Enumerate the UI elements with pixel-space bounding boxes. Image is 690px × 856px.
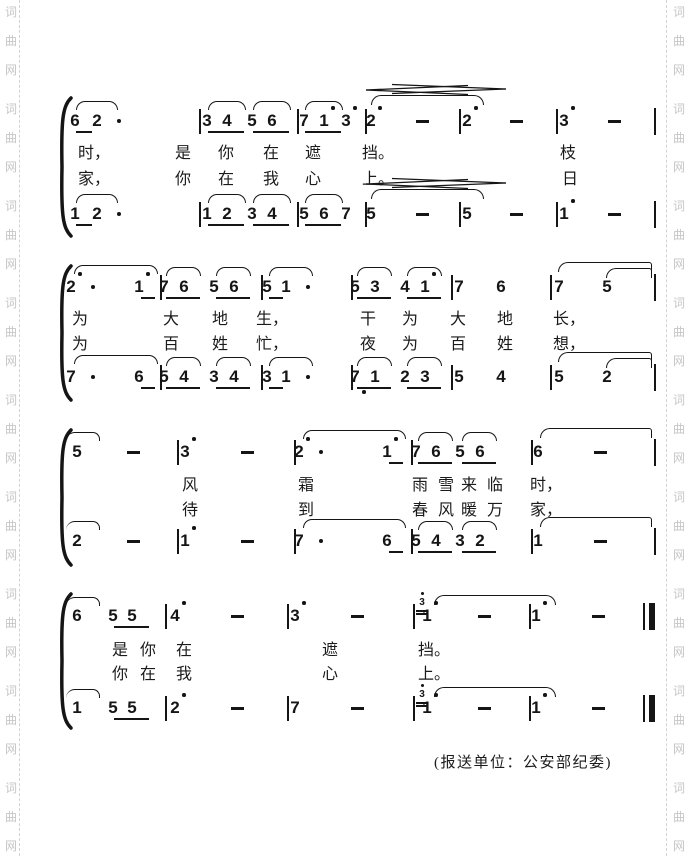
watermark-char: 词 [673, 782, 685, 794]
eighth-underline [76, 224, 92, 226]
jianpu-note: 5 [155, 368, 173, 386]
lyric-syllable: 家， [78, 171, 110, 188]
watermark-char: 网 [5, 161, 17, 173]
watermark-char: 网 [5, 743, 17, 755]
eighth-underline [462, 551, 496, 553]
jianpu-note: 3 [205, 368, 223, 386]
watermark-char: 曲 [673, 714, 685, 726]
sustain-dash [510, 213, 523, 216]
tie [434, 595, 556, 605]
tie-continuation [606, 358, 652, 368]
jianpu-note: 2 [88, 112, 106, 130]
eighth-underline [253, 224, 289, 226]
eighth-underline [166, 297, 200, 299]
eighth-underline [389, 551, 403, 553]
slur [418, 432, 453, 441]
eighth-underline [166, 387, 200, 389]
slur [208, 101, 246, 110]
watermark-char: 词 [5, 297, 17, 309]
jianpu-note: 7 [337, 205, 355, 223]
slur [76, 101, 118, 110]
augmentation-dot [306, 375, 310, 379]
slur [418, 521, 453, 530]
eighth-underline [305, 224, 341, 226]
jianpu-note: 3 [555, 112, 573, 130]
lyric-syllable: 大 [450, 311, 466, 328]
jianpu-note: 3 [366, 278, 384, 296]
jianpu-note: 6 [378, 532, 396, 550]
slur [253, 194, 291, 203]
lyric-syllable: 在 [140, 666, 156, 683]
tie [371, 95, 484, 105]
augmentation-dot [91, 285, 95, 289]
jianpu-note: 1 [418, 699, 436, 717]
jianpu-note: 6 [68, 607, 86, 625]
jianpu-note: 5 [451, 443, 469, 461]
eighth-underline [141, 297, 155, 299]
jianpu-note: 6 [130, 368, 148, 386]
lyric-syllable: 风 [438, 502, 454, 519]
jianpu-note: 5 [295, 205, 313, 223]
jianpu-note: 6 [492, 278, 510, 296]
watermark-char: 词 [673, 200, 685, 212]
decrescendo-hairpin [392, 179, 506, 184]
tie [434, 687, 556, 697]
sustain-dash [416, 120, 429, 123]
watermark-char: 曲 [5, 811, 17, 823]
tie [371, 189, 484, 199]
watermark-char: 曲 [5, 423, 17, 435]
system-end-barline [654, 439, 656, 466]
sustain-dash [608, 213, 621, 216]
augmentation-dot [319, 539, 323, 543]
lyric-syllable: 待 [182, 502, 198, 519]
eighth-underline [208, 131, 244, 133]
lyric-syllable: 百 [163, 336, 179, 353]
jianpu-note: 7 [290, 532, 308, 550]
jianpu-note: 4 [263, 205, 281, 223]
watermark-char: 词 [673, 6, 685, 18]
decrescendo-hairpin [392, 89, 506, 94]
eighth-underline [141, 387, 155, 389]
eighth-underline [76, 131, 92, 133]
lyric-syllable: 为 [72, 311, 88, 328]
jianpu-note: 1 [366, 368, 384, 386]
octave-dot-high [192, 526, 196, 530]
jianpu-note: 2 [62, 278, 80, 296]
watermark-char: 曲 [673, 35, 685, 47]
jianpu-note: 4 [175, 368, 193, 386]
lyric-syllable: 是 [112, 642, 128, 659]
watermark-divider-right [666, 0, 667, 856]
jianpu-note: 5 [407, 532, 425, 550]
jianpu-note: 6 [427, 443, 445, 461]
watermark-char: 网 [673, 355, 685, 367]
lyric-syllable: 雪 [438, 477, 454, 494]
lyric-syllable: 干 [360, 311, 376, 328]
lyric-syllable: 忙， [256, 336, 288, 353]
lyric-syllable: 日 [562, 171, 578, 188]
jianpu-note: 2 [362, 112, 380, 130]
octave-dot-high [378, 106, 382, 110]
watermark-char: 词 [5, 394, 17, 406]
lyric-syllable: 时， [530, 477, 562, 494]
barline [413, 696, 415, 721]
sustain-dash [241, 451, 254, 454]
lyric-syllable: 在 [218, 171, 234, 188]
jianpu-note: 2 [88, 205, 106, 223]
jianpu-note: 1 [527, 607, 545, 625]
jianpu-note: 7 [62, 368, 80, 386]
jianpu-note: 4 [218, 112, 236, 130]
tie-continuation [540, 517, 652, 527]
jianpu-note: 5 [104, 607, 122, 625]
sustain-dash [231, 707, 244, 710]
eighth-underline [269, 297, 283, 299]
watermark-char: 词 [673, 491, 685, 503]
slur [303, 430, 406, 439]
lyric-syllable: 春 [412, 502, 428, 519]
sustain-dash [241, 540, 254, 543]
sustain-dash [478, 707, 491, 710]
lyric-syllable: 为 [402, 311, 418, 328]
jianpu-note: 2 [218, 205, 236, 223]
jianpu-note: 1 [555, 205, 573, 223]
slur [253, 101, 291, 110]
barline [413, 604, 415, 629]
jianpu-note: 6 [471, 443, 489, 461]
lyric-syllable: 大 [163, 311, 179, 328]
watermark-char: 曲 [5, 132, 17, 144]
jianpu-note: 4 [166, 607, 184, 625]
watermark-char: 网 [673, 161, 685, 173]
jianpu-note: 3 [337, 112, 355, 130]
watermark-char: 词 [5, 103, 17, 115]
lyric-syllable: 为 [402, 336, 418, 353]
jianpu-note: 7 [286, 699, 304, 717]
jianpu-note: 5 [346, 278, 364, 296]
watermark-char: 曲 [5, 326, 17, 338]
submission-note: (报送单位：公安部纪委) [434, 754, 612, 773]
watermark-char: 词 [5, 782, 17, 794]
lyric-syllable: 挡。 [418, 642, 450, 659]
jianpu-note: 7 [450, 278, 468, 296]
jianpu-note: 1 [277, 368, 295, 386]
slur [76, 194, 118, 203]
watermark-char: 网 [673, 64, 685, 76]
eighth-underline [462, 462, 496, 464]
jianpu-note: 6 [66, 112, 84, 130]
sustain-dash [592, 707, 605, 710]
jianpu-note: 1 [68, 699, 86, 717]
lyric-syllable: 生， [256, 311, 288, 328]
jianpu-note: 7 [346, 368, 364, 386]
jianpu-note: 1 [198, 205, 216, 223]
watermark-char: 曲 [673, 423, 685, 435]
final-barline-thick [649, 603, 655, 630]
lyric-syllable: 暖 [461, 502, 477, 519]
watermark-char: 曲 [673, 132, 685, 144]
octave-dot-high [182, 601, 186, 605]
grace-octave-dot [421, 592, 424, 595]
eighth-underline [253, 131, 289, 133]
jianpu-note: 7 [407, 443, 425, 461]
jianpu-note: 2 [166, 699, 184, 717]
jianpu-note: 5 [458, 205, 476, 223]
octave-dot-high [302, 601, 306, 605]
jianpu-note: 3 [451, 532, 469, 550]
eighth-underline [114, 718, 149, 720]
eighth-underline [407, 297, 441, 299]
lyric-syllable: 霜 [298, 477, 314, 494]
augmentation-dot [117, 119, 121, 123]
jianpu-note: 3 [286, 607, 304, 625]
watermark-char: 曲 [5, 229, 17, 241]
jianpu-note: 1 [527, 699, 545, 717]
watermark-char: 词 [5, 685, 17, 697]
grace-octave-dot [421, 684, 424, 687]
lyric-syllable: 想， [553, 336, 585, 353]
lyric-syllable: 雨 [412, 477, 428, 494]
system-end-barline [654, 201, 656, 228]
tie-continuation [540, 428, 652, 438]
watermark-char: 词 [673, 685, 685, 697]
jianpu-note: 2 [290, 443, 308, 461]
system-end-barline [654, 108, 656, 135]
slur [305, 101, 343, 110]
watermark-char: 曲 [673, 617, 685, 629]
lyric-syllable: 临 [487, 477, 503, 494]
sustain-dash [592, 615, 605, 618]
eighth-underline [357, 387, 391, 389]
lyric-syllable: 地 [497, 311, 513, 328]
watermark-char: 曲 [673, 811, 685, 823]
watermark-char: 网 [673, 646, 685, 658]
watermark-char: 网 [5, 64, 17, 76]
slur [166, 267, 201, 276]
jianpu-note: 5 [104, 699, 122, 717]
sustain-dash [608, 120, 621, 123]
jianpu-note: 5 [68, 443, 86, 461]
lyric-syllable: 上。 [362, 171, 394, 188]
lyric-syllable: 你 [140, 642, 156, 659]
jianpu-note: 2 [68, 532, 86, 550]
sustain-dash [594, 540, 607, 543]
watermark-char: 网 [673, 452, 685, 464]
lyric-syllable: 我 [263, 171, 279, 188]
watermark-char: 词 [673, 588, 685, 600]
lyric-syllable: 在 [263, 145, 279, 162]
lyric-syllable: 是 [175, 145, 191, 162]
system-end-barline [654, 274, 656, 301]
slur [407, 267, 442, 276]
slur [407, 357, 442, 366]
crescendo-hairpin [366, 90, 468, 95]
jianpu-note: 6 [529, 443, 547, 461]
watermark-char: 曲 [5, 520, 17, 532]
lyric-syllable: 上。 [418, 666, 450, 683]
tie-continuation [606, 268, 652, 278]
octave-dot-high [192, 437, 196, 441]
jianpu-note: 5 [362, 205, 380, 223]
eighth-underline [208, 224, 244, 226]
jianpu-note: 4 [492, 368, 510, 386]
augmentation-dot [91, 375, 95, 379]
slur [462, 521, 497, 530]
slur [208, 194, 246, 203]
jianpu-note: 5 [123, 607, 141, 625]
sustain-dash [594, 451, 607, 454]
octave-dot-high [474, 106, 478, 110]
eighth-underline [216, 387, 250, 389]
watermark-char: 词 [5, 200, 17, 212]
eighth-underline [305, 131, 341, 133]
jianpu-note: 1 [66, 205, 84, 223]
eighth-underline [269, 387, 283, 389]
slur [357, 267, 392, 276]
octave-dot-high [571, 199, 575, 203]
jianpu-note: 3 [176, 443, 194, 461]
jianpu-note: 3 [243, 205, 261, 223]
watermark-char: 曲 [673, 520, 685, 532]
jianpu-note: 2 [598, 368, 616, 386]
sustain-dash [231, 615, 244, 618]
lyric-syllable: 心 [305, 171, 321, 188]
watermark-char: 曲 [673, 326, 685, 338]
jianpu-note: 7 [550, 278, 568, 296]
jianpu-note: 1 [130, 278, 148, 296]
jianpu-note: 6 [225, 278, 243, 296]
watermark-char: 词 [673, 394, 685, 406]
octave-dot-low [362, 390, 366, 394]
eighth-underline [389, 462, 403, 464]
lyric-syllable: 来 [461, 477, 477, 494]
lyric-syllable: 百 [450, 336, 466, 353]
slur [74, 265, 158, 274]
sustain-dash [127, 540, 140, 543]
final-barline-thin [643, 695, 645, 722]
slur [357, 357, 392, 366]
eighth-underline [357, 297, 391, 299]
jianpu-note: 1 [378, 443, 396, 461]
watermark-char: 词 [5, 588, 17, 600]
jianpu-note: 2 [458, 112, 476, 130]
lyric-syllable: 到 [298, 502, 314, 519]
sustain-dash [510, 120, 523, 123]
augmentation-dot [117, 212, 121, 216]
eighth-underline [216, 297, 250, 299]
watermark-char: 词 [5, 491, 17, 503]
slur [462, 432, 497, 441]
watermark-char: 曲 [5, 617, 17, 629]
sustain-dash [351, 615, 364, 618]
lyric-syllable: 遮 [305, 145, 321, 162]
watermark-char: 词 [673, 297, 685, 309]
final-barline-thin [643, 603, 645, 630]
jianpu-note: 5 [243, 112, 261, 130]
jianpu-note: 1 [529, 532, 547, 550]
decrescendo-hairpin [392, 85, 506, 90]
slur [269, 267, 313, 276]
jianpu-note: 1 [277, 278, 295, 296]
octave-dot-high [182, 693, 186, 697]
watermark-char: 网 [673, 549, 685, 561]
jianpu-note: 1 [418, 607, 436, 625]
score-page: (报送单位：公安部纪委) 词词曲曲网网词词曲曲网网词词曲曲网网词词曲曲网网词词曲… [0, 0, 690, 856]
slur [305, 194, 343, 203]
jianpu-note: 1 [315, 112, 333, 130]
eighth-underline [418, 462, 452, 464]
eighth-underline [114, 626, 149, 628]
system-end-barline [654, 528, 656, 555]
watermark-char: 网 [5, 549, 17, 561]
lyric-syllable: 姓 [497, 336, 513, 353]
jianpu-note: 6 [175, 278, 193, 296]
watermark-char: 网 [5, 646, 17, 658]
watermark-char: 曲 [5, 714, 17, 726]
octave-dot-high [571, 106, 575, 110]
tie-continuation [66, 432, 100, 441]
sustain-dash [351, 707, 364, 710]
lyric-syllable: 风 [182, 477, 198, 494]
jianpu-note: 6 [263, 112, 281, 130]
augmentation-dot [319, 450, 323, 454]
octave-dot-high [353, 106, 357, 110]
jianpu-note: 3 [198, 112, 216, 130]
sustain-dash [478, 615, 491, 618]
lyric-syllable: 姓 [212, 336, 228, 353]
lyric-syllable: 长， [553, 311, 585, 328]
slur [303, 519, 406, 528]
slur [216, 357, 251, 366]
watermark-char: 网 [5, 840, 17, 852]
lyric-syllable: 万 [487, 502, 503, 519]
lyric-syllable: 时， [78, 145, 110, 162]
jianpu-note: 2 [396, 368, 414, 386]
eighth-underline [418, 551, 452, 553]
lyric-syllable: 为 [72, 336, 88, 353]
lyric-syllable: 在 [176, 642, 192, 659]
jianpu-note: 5 [450, 368, 468, 386]
watermark-char: 词 [5, 6, 17, 18]
augmentation-dot [306, 285, 310, 289]
decrescendo-hairpin [392, 183, 506, 188]
watermark-char: 网 [673, 258, 685, 270]
lyric-syllable: 你 [218, 145, 234, 162]
jianpu-note: 4 [225, 368, 243, 386]
jianpu-note: 3 [416, 368, 434, 386]
lyric-syllable: 心 [322, 666, 338, 683]
watermark-char: 曲 [5, 35, 17, 47]
lyric-syllable: 我 [176, 666, 192, 683]
slur [216, 267, 251, 276]
slur [74, 355, 158, 364]
jianpu-note: 5 [205, 278, 223, 296]
tie-continuation [66, 597, 100, 606]
lyric-syllable: 夜 [360, 336, 376, 353]
jianpu-note: 5 [123, 699, 141, 717]
sustain-dash [416, 213, 429, 216]
tie-continuation [66, 689, 100, 698]
crescendo-hairpin [366, 86, 468, 91]
jianpu-note: 3 [258, 368, 276, 386]
system-end-barline [654, 364, 656, 391]
watermark-char: 网 [5, 355, 17, 367]
jianpu-note: 5 [598, 278, 616, 296]
lyric-syllable: 你 [175, 171, 191, 188]
watermark-char: 网 [673, 743, 685, 755]
jianpu-note: 7 [155, 278, 173, 296]
